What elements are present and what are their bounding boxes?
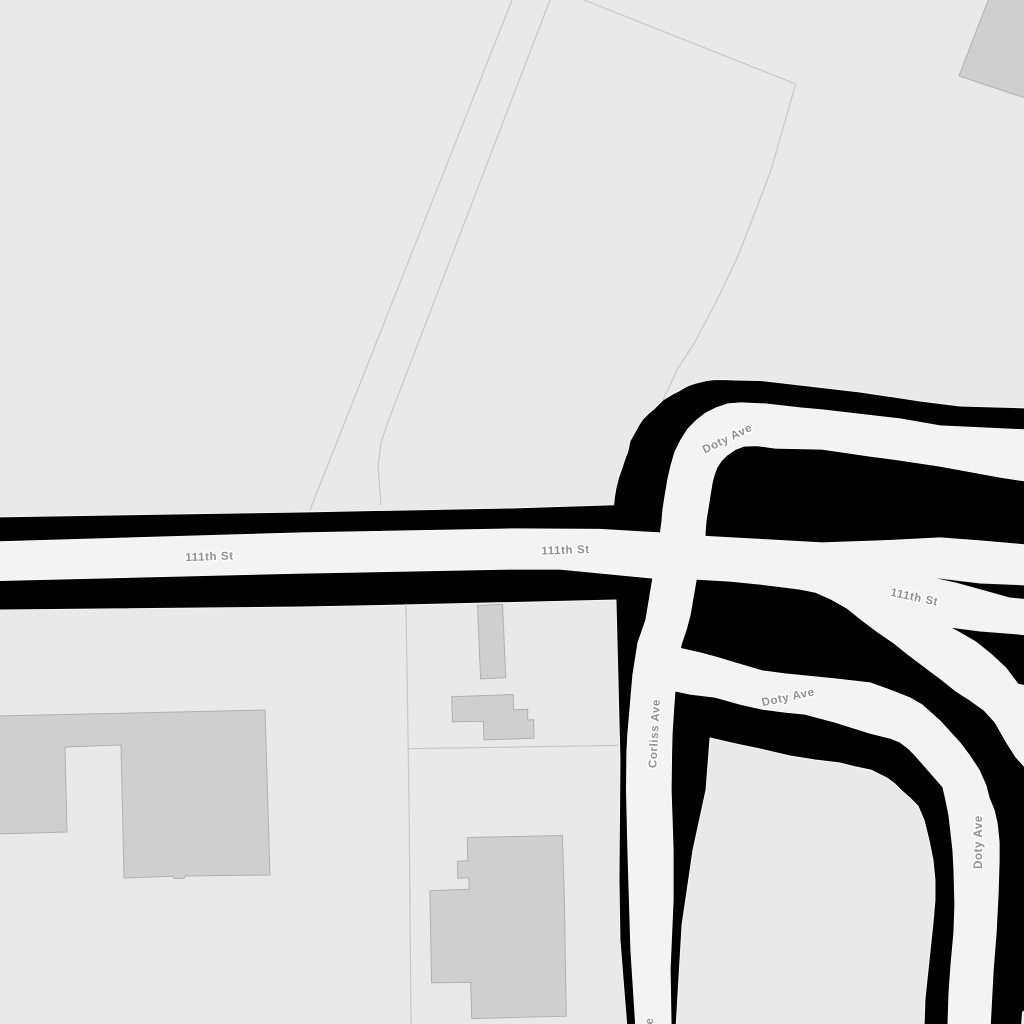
svg-text:111th St: 111th St (541, 544, 590, 558)
svg-text:111th St: 111th St (185, 550, 234, 564)
svg-text:Doty Ave: Doty Ave (973, 815, 985, 869)
svg-text:e: e (644, 1017, 656, 1024)
